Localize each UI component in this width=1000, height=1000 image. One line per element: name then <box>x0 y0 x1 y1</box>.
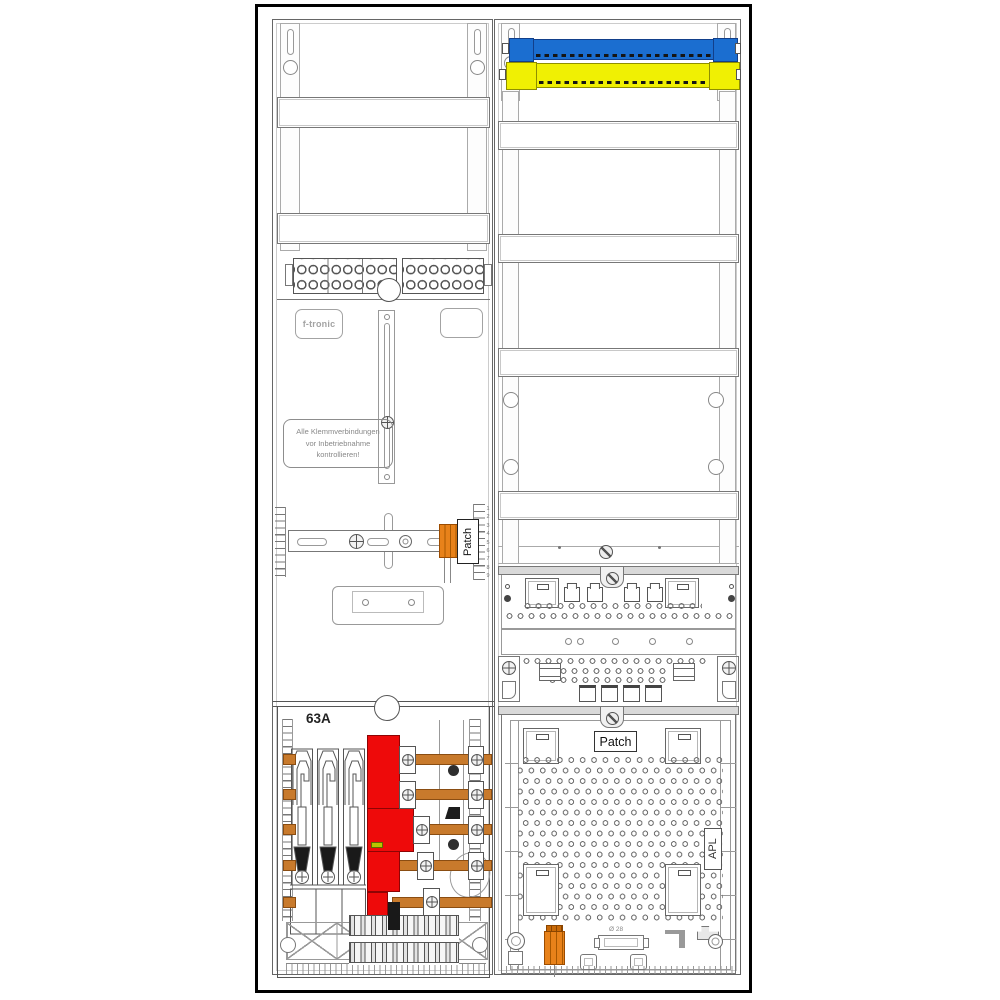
rail-slot <box>474 29 481 55</box>
busbar-copper-stub <box>283 789 296 800</box>
busbar-dash-line <box>536 54 712 57</box>
module-wire <box>450 558 451 583</box>
bar-ring <box>399 535 412 548</box>
cable-entry-plate-inner <box>604 938 638 947</box>
panel-hole <box>708 459 724 475</box>
patch-label-text: Patch <box>600 735 632 749</box>
ruler-number: 6 <box>486 548 489 554</box>
ruler-number: 4 <box>486 531 489 537</box>
rail-hole <box>470 60 485 75</box>
busbar-clamp <box>468 781 484 809</box>
plate-hole <box>362 599 369 606</box>
cable-connector-orange <box>544 931 565 965</box>
strip-hole <box>612 638 619 645</box>
busbar-clamp <box>468 746 484 774</box>
perforated-strip-panel <box>501 656 736 706</box>
panel-screw-dot <box>729 584 734 589</box>
warning-line: kontrollieren! <box>317 449 360 461</box>
breaker-black-slot <box>388 902 400 930</box>
rj45-jack <box>564 587 580 602</box>
meter-cabinet-diagram: f-tronic Alle Klemmverbindungen vor Inbe… <box>0 0 1000 1000</box>
ruler-number: 8 <box>486 565 489 571</box>
terminal-strip <box>349 915 459 965</box>
diameter-label: Ø 28 <box>609 926 623 933</box>
multimedia-tab <box>600 566 624 588</box>
spacer-strip <box>501 629 736 655</box>
clamp-screw <box>420 860 432 872</box>
strip-hole <box>649 638 656 645</box>
cutout-slot <box>536 734 549 740</box>
din-rail-band <box>498 234 739 263</box>
patch-label-left: Patch <box>457 519 479 564</box>
rail-hole <box>283 60 298 75</box>
busbar-copper-stub <box>283 860 296 871</box>
panel-screw-dot <box>505 584 510 589</box>
busbar-clamp <box>423 888 440 916</box>
pe-busbar <box>506 63 740 88</box>
din-rail-band <box>498 491 739 520</box>
divider-tab <box>600 706 624 728</box>
ruler-number: 9 <box>486 573 489 579</box>
panel-dot <box>558 546 561 549</box>
clamp-screw <box>471 789 483 801</box>
bracket-foot <box>722 681 736 699</box>
cable-entry <box>630 954 647 970</box>
clamp-screw <box>402 789 414 801</box>
cutout-slot <box>678 870 691 876</box>
cable-entry-inner <box>634 958 643 966</box>
strip-hole <box>686 638 693 645</box>
panel-dot <box>658 546 661 549</box>
corner-knob <box>280 937 296 953</box>
busbar-clamp <box>417 852 434 880</box>
bar-slot <box>367 538 389 546</box>
corner-knob <box>472 937 488 953</box>
plate-cap <box>643 938 649 948</box>
sls-switch-3pole <box>290 747 366 937</box>
square-cutout <box>623 685 640 702</box>
tab-screw <box>606 572 619 585</box>
busbar-end-block <box>509 38 534 62</box>
bracket-screw <box>502 661 516 675</box>
cutout-rect <box>665 864 701 916</box>
apl-label-text: APL <box>707 839 719 860</box>
warning-line: Alle Klemmverbindungen <box>296 426 379 438</box>
clamp-screw <box>402 754 414 766</box>
corner-knob <box>708 934 723 949</box>
brand-badge: f-tronic <box>295 309 343 339</box>
panel-edge-line <box>498 546 739 547</box>
busbar-end-tab <box>736 69 741 80</box>
module-wire <box>444 558 445 583</box>
mounting-plate <box>332 586 444 625</box>
cable-entry-plate <box>598 935 644 950</box>
busbar-end-tab <box>502 43 509 54</box>
separator-grommet <box>374 695 400 721</box>
busbar-clamp <box>399 746 416 774</box>
rj45-jack <box>647 587 663 602</box>
angle-bracket <box>665 930 685 948</box>
rj45-jack <box>587 587 603 602</box>
warning-line: vor Inbetriebnahme <box>306 438 371 450</box>
rail-slot <box>287 29 294 55</box>
apl-label: APL <box>704 828 722 870</box>
patch-label-text: Patch <box>462 527 474 555</box>
panel-edge-line <box>498 563 739 564</box>
busbar-clamp <box>413 816 430 844</box>
busbar-copper-stub <box>283 754 296 765</box>
panel-screw-dot <box>504 595 511 602</box>
cutout-slot <box>678 734 691 740</box>
patch-module-orange <box>439 524 458 558</box>
clamp-screw <box>471 754 483 766</box>
busbar-end-block <box>506 62 537 90</box>
din-rail-band <box>498 348 739 377</box>
bracket-foot <box>502 681 516 699</box>
din-rail-band <box>277 97 490 128</box>
panel-hole <box>503 459 519 475</box>
sls-pole <box>344 749 365 885</box>
din-rail-band <box>498 121 739 150</box>
panel-screw <box>599 545 613 559</box>
vent-grille <box>539 663 561 681</box>
rail-hole <box>384 474 390 480</box>
bracket-screw <box>722 661 736 675</box>
ruler-number: 3 <box>486 523 489 529</box>
hole-row <box>522 601 702 611</box>
warning-label: Alle Klemmverbindungen vor Inbetriebnahm… <box>283 419 393 468</box>
ruler-left <box>275 507 286 577</box>
ruler-numbers: 1 2 3 4 5 6 7 8 9 <box>484 506 492 579</box>
vent-grille <box>673 663 695 681</box>
square-cutout <box>601 685 618 702</box>
corner-bracket <box>498 656 520 702</box>
busbar-copper <box>392 897 492 908</box>
corner-knob <box>507 932 525 950</box>
hole-row <box>547 675 669 685</box>
cutout-rect <box>523 864 559 916</box>
channel-screw <box>448 839 459 850</box>
clamp-screw <box>426 896 438 908</box>
din-rail-band <box>277 213 490 244</box>
apl-panel: Patch APL Ø 28 <box>501 714 736 974</box>
clamp-screw <box>471 860 483 872</box>
bar-screw <box>349 534 364 549</box>
bottom-hatch <box>506 966 735 974</box>
rail-hole <box>384 314 390 320</box>
square-cutout <box>645 685 662 702</box>
busbar-clamp <box>468 816 484 844</box>
cable-entry-inner <box>584 958 593 966</box>
busbar-clamp <box>399 781 416 809</box>
brand-label: f-tronic <box>303 319 336 329</box>
busbar-copper-stub <box>283 897 296 908</box>
indicator-green <box>371 842 383 848</box>
plate-cap <box>594 938 600 948</box>
busbar-dash-line <box>539 81 707 84</box>
terminal-end-tab <box>285 264 293 286</box>
shield-slot <box>537 584 549 590</box>
terminal-strip-row <box>349 915 459 936</box>
terminal-block-right <box>402 258 484 294</box>
ruler-number: 1 <box>486 506 489 512</box>
square-cutout <box>579 685 596 702</box>
panel-screw-dot <box>728 595 735 602</box>
bar-slot <box>297 538 327 546</box>
cable-entry <box>580 954 597 970</box>
busbar-copper-stub <box>283 824 296 835</box>
sls-pole <box>318 749 339 885</box>
neutral-busbar <box>509 39 738 60</box>
right-column: Patch APL Ø 28 <box>494 19 741 975</box>
clamp-screw <box>471 824 483 836</box>
plate-hole <box>408 599 415 606</box>
channel-screw <box>448 765 459 776</box>
terminal-end-tab <box>484 264 492 286</box>
busbar-end-tab <box>499 69 506 80</box>
clamp-screw <box>416 824 428 836</box>
panel-hole <box>503 392 519 408</box>
strip-hole <box>577 638 584 645</box>
patch-label-right: Patch <box>594 731 637 752</box>
busbar-end-tab <box>735 43 741 54</box>
rj45-jack <box>624 587 640 602</box>
ruler-number: 5 <box>486 540 489 546</box>
tab-screw <box>606 712 619 725</box>
hole-row <box>504 611 735 621</box>
connector-ridges <box>546 925 563 932</box>
corner-bracket <box>717 656 739 702</box>
panel-hole <box>708 392 724 408</box>
knob-base <box>508 951 523 965</box>
module-lower-left: 63A <box>277 706 490 978</box>
ruler-number: 7 <box>486 556 489 562</box>
terminal-strip-row <box>349 942 459 963</box>
rating-label: 63A <box>306 711 331 726</box>
ruler-number: 2 <box>486 514 489 520</box>
blank-badge <box>440 308 483 338</box>
shield-slot <box>677 584 689 590</box>
plate-inner <box>352 591 424 613</box>
cutout-slot <box>536 870 549 876</box>
strip-hole <box>565 638 572 645</box>
left-column: f-tronic Alle Klemmverbindungen vor Inbe… <box>272 19 493 975</box>
center-grommet <box>377 278 401 302</box>
busbar-clamp <box>468 852 484 880</box>
